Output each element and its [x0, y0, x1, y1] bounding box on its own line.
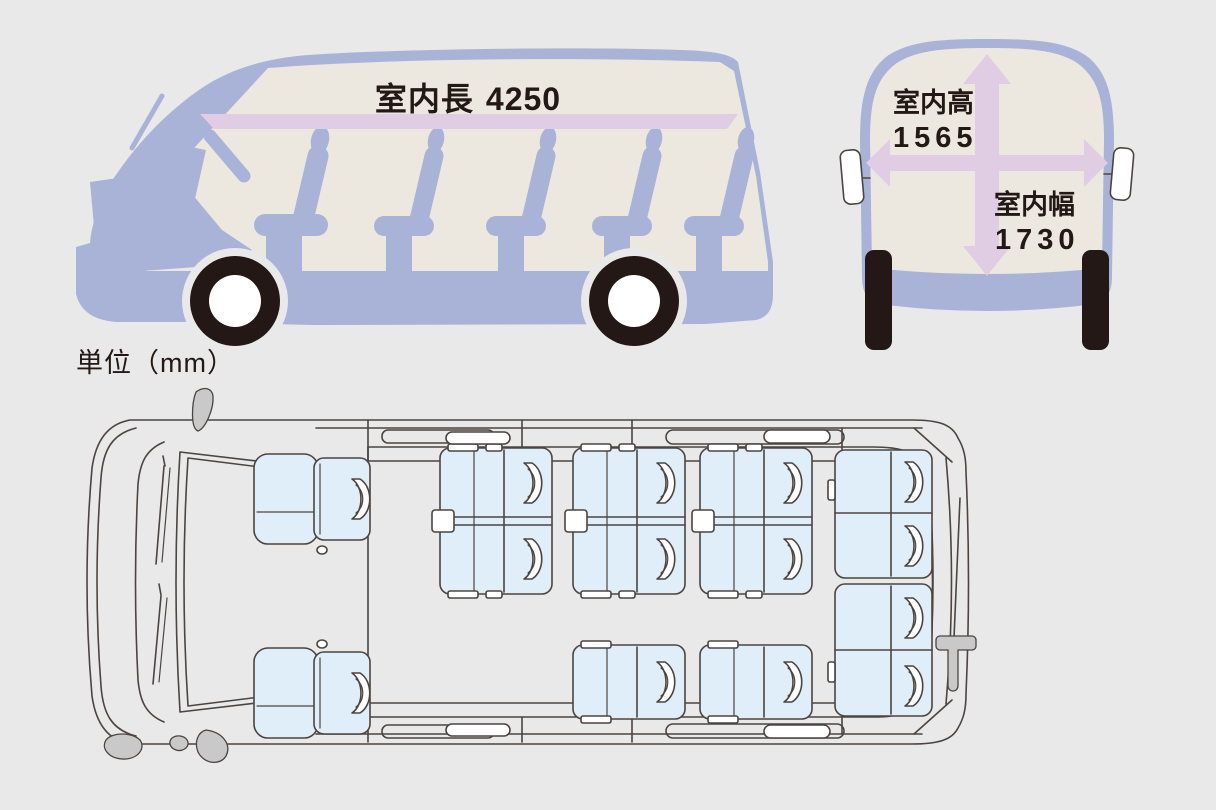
vehicle-dimensions-diagram: { "unit_label": "単位（mm）", "dimensions": …: [0, 0, 1216, 810]
corner-marker-small: [170, 736, 188, 751]
interior-width-label: 室内幅: [994, 189, 1075, 220]
sliding-door-handle-top: [764, 430, 830, 443]
unit-label: 単位（mm）: [76, 341, 235, 380]
sliding-door-handle-bottom: [764, 725, 830, 738]
front-bumper-lines: [97, 428, 164, 736]
front-door-handle-bottom: [446, 724, 510, 736]
rear-wiper-handle: [936, 636, 976, 691]
interior-width-value: 1730: [995, 224, 1080, 256]
right-mirror: [1110, 147, 1134, 201]
seat-pair-row4: [692, 444, 812, 598]
interior-height-value: 1565: [893, 122, 978, 154]
seat-single-row4: [700, 641, 812, 723]
seat-pair-row3: [565, 444, 685, 598]
front-wheel: [182, 248, 288, 351]
top-view: [66, 386, 990, 782]
front-passenger-seat: [254, 454, 370, 544]
interior-height-label: 室内高: [893, 87, 974, 118]
left-mirror: [840, 149, 865, 205]
rear-view: 室内高 1565 室内幅 1730: [836, 28, 1138, 360]
rear-bench-seat: [828, 450, 932, 716]
rear-right-wheel: [1082, 250, 1109, 350]
seat-pair-row2: [432, 444, 552, 598]
rear-wiper-arm: [954, 498, 960, 638]
side-view: 室内長4250: [72, 36, 782, 351]
top-mirror: [193, 389, 214, 431]
bottom-mirror: [196, 730, 227, 762]
windshield-wipers: [153, 456, 170, 684]
driver-seat: [254, 648, 370, 738]
seat-single-row3: [573, 641, 685, 723]
seatbelt-anchor-front: [317, 546, 327, 554]
seatbelt-anchor-driver: [317, 640, 327, 648]
corner-marker: [104, 734, 142, 759]
front-door-handle-top: [446, 432, 510, 444]
rear-wheel: [581, 248, 687, 351]
interior-length-label: 室内長4250: [375, 81, 561, 117]
rear-left-wheel: [865, 250, 892, 350]
